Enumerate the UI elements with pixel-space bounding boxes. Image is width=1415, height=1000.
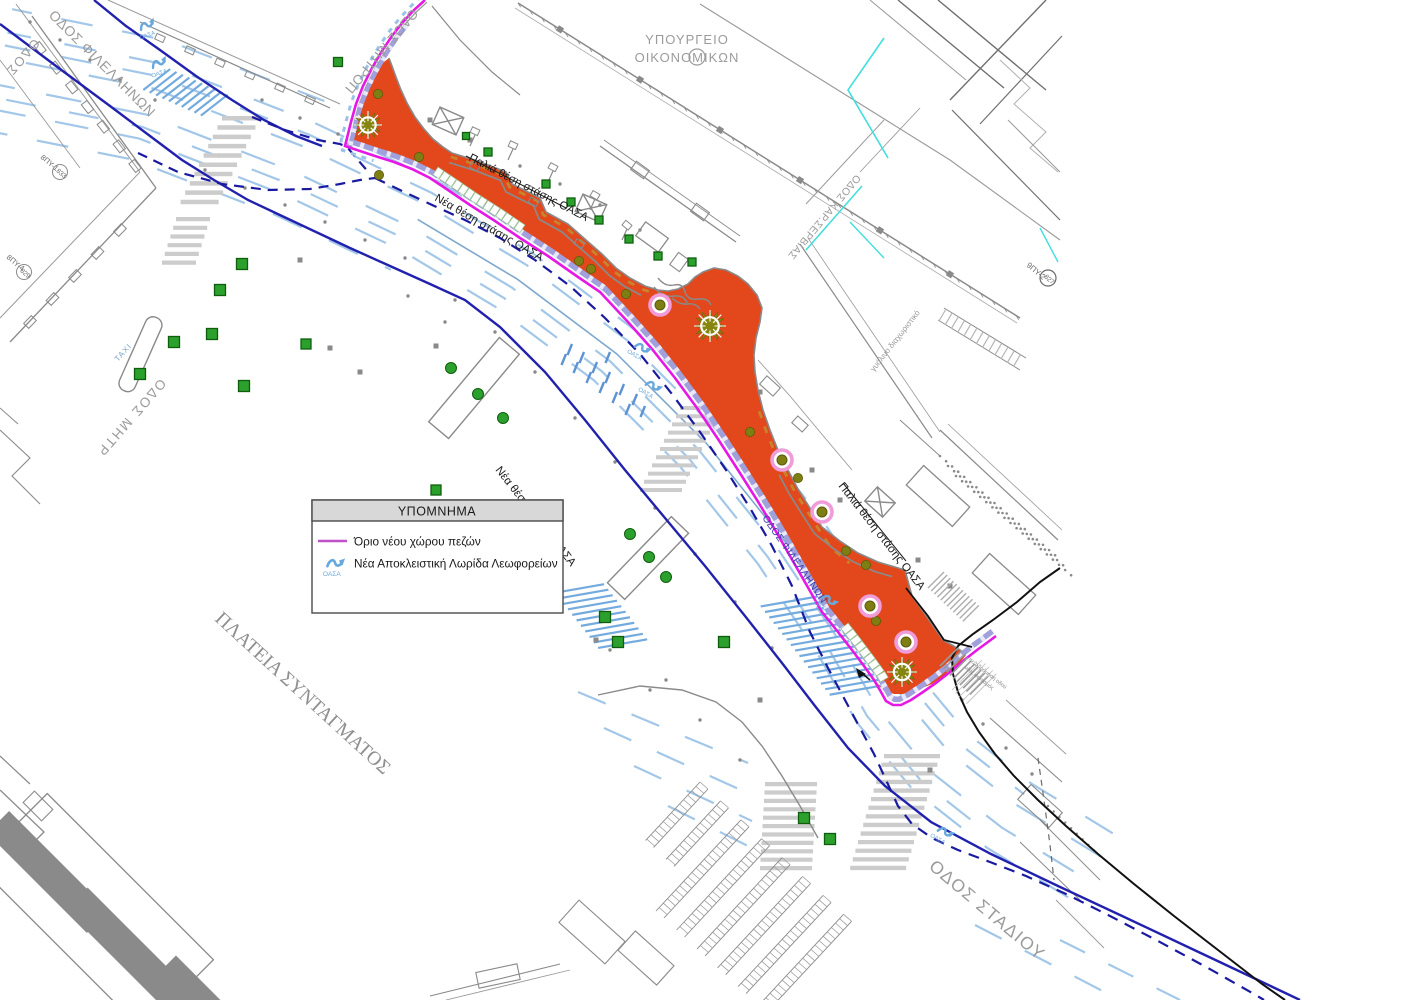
svg-text:ΟΑΣΑ: ΟΑΣΑ: [323, 571, 341, 578]
svg-text:ΟΙΚΟΝΟΜΙΚΩΝ: ΟΙΚΟΝΟΜΙΚΩΝ: [635, 50, 740, 65]
svg-text:Όριο νέου χώρου πεζών: Όριο νέου χώρου πεζών: [353, 535, 481, 549]
svg-text:Νέα Αποκλειστική Λωρίδα Λεωφορ: Νέα Αποκλειστική Λωρίδα Λεωφορείων: [354, 557, 558, 571]
svg-text:ΥΠΟΥΡΓΕΙΟ: ΥΠΟΥΡΓΕΙΟ: [645, 32, 729, 47]
svg-text:ΥΠΟΜΝΗΜΑ: ΥΠΟΜΝΗΜΑ: [398, 505, 476, 519]
